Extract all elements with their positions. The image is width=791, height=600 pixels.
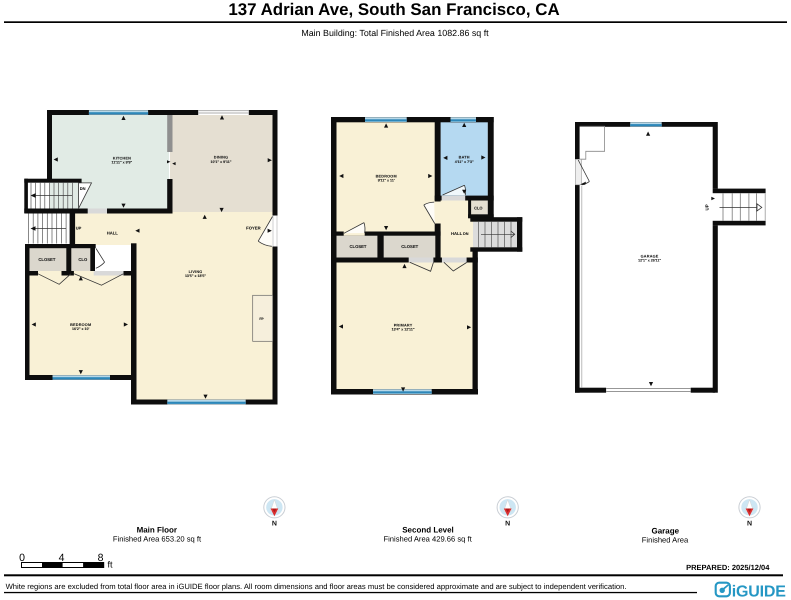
svg-text:CLO: CLO bbox=[78, 257, 88, 262]
svg-text:White regions are excluded fro: White regions are excluded from total fl… bbox=[6, 582, 627, 591]
svg-text:Garage: Garage bbox=[652, 527, 680, 536]
svg-text:Finished Area: Finished Area bbox=[642, 536, 689, 545]
svg-text:DN: DN bbox=[80, 186, 86, 191]
svg-text:137 Adrian Ave, South San Fran: 137 Adrian Ave, South San Francisco, CA bbox=[228, 0, 559, 19]
svg-text:CLOSET: CLOSET bbox=[38, 257, 55, 262]
svg-text:CLOSET: CLOSET bbox=[401, 244, 418, 249]
svg-text:Main Floor: Main Floor bbox=[137, 526, 177, 535]
svg-text:DN: DN bbox=[463, 232, 469, 236]
svg-text:FOYER: FOYER bbox=[246, 226, 260, 231]
svg-text:Finished Area 429.66 sq ft: Finished Area 429.66 sq ft bbox=[383, 535, 472, 544]
svg-text:4'11" x 7'3": 4'11" x 7'3" bbox=[455, 160, 474, 164]
svg-text:FP: FP bbox=[259, 317, 264, 321]
svg-text:PREPARED: 2025/12/04: PREPARED: 2025/12/04 bbox=[686, 563, 770, 572]
svg-text:HALL: HALL bbox=[451, 231, 463, 236]
svg-text:ft: ft bbox=[108, 560, 114, 570]
svg-text:11'11" x 9'9": 11'11" x 9'9" bbox=[112, 161, 133, 165]
svg-text:12'1" x 26'11": 12'1" x 26'11" bbox=[638, 259, 661, 263]
svg-text:iGUIDE: iGUIDE bbox=[732, 584, 786, 600]
svg-text:13'5" x 18'5": 13'5" x 18'5" bbox=[185, 274, 206, 278]
svg-text:UP: UP bbox=[76, 226, 82, 231]
svg-text:10'1" x 9'11": 10'1" x 9'11" bbox=[211, 160, 232, 164]
svg-text:N: N bbox=[272, 521, 277, 528]
svg-text:CLO: CLO bbox=[474, 205, 482, 210]
svg-text:N: N bbox=[505, 521, 510, 528]
svg-text:16'2" x 10': 16'2" x 10' bbox=[72, 327, 90, 331]
svg-text:13'4" x 12'11": 13'4" x 12'11" bbox=[392, 328, 415, 332]
svg-text:UP: UP bbox=[704, 204, 709, 210]
svg-text:Finished Area 653.20 sq ft: Finished Area 653.20 sq ft bbox=[113, 535, 202, 544]
svg-text:Main Building: Total Finished: Main Building: Total Finished Area 1082.… bbox=[301, 28, 489, 38]
svg-text:Second Level: Second Level bbox=[402, 526, 454, 535]
svg-text:9'11" x 11': 9'11" x 11' bbox=[378, 179, 395, 183]
svg-text:HALL: HALL bbox=[107, 231, 119, 236]
svg-text:CLOSET: CLOSET bbox=[350, 244, 367, 249]
svg-text:N: N bbox=[747, 521, 752, 528]
